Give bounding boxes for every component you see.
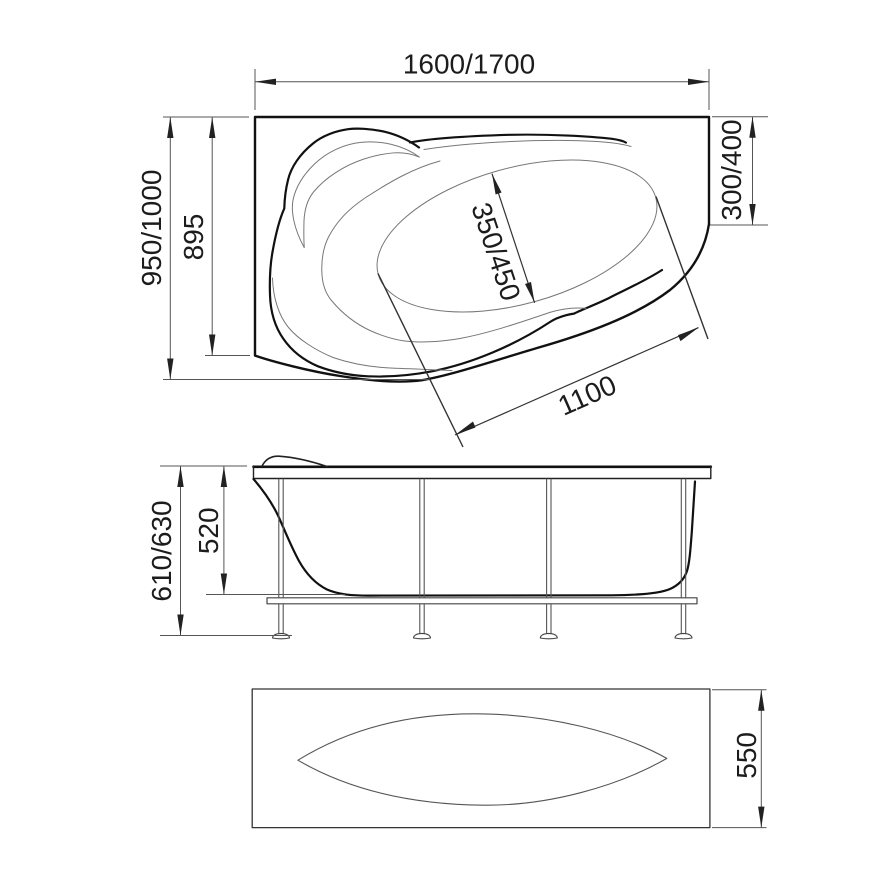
svg-text:895: 895 bbox=[178, 214, 209, 261]
svg-text:550: 550 bbox=[731, 732, 762, 779]
svg-text:300/400: 300/400 bbox=[716, 119, 747, 220]
svg-text:520: 520 bbox=[193, 507, 224, 554]
svg-text:610/630: 610/630 bbox=[146, 500, 177, 601]
svg-text:1600/1700: 1600/1700 bbox=[403, 49, 535, 80]
svg-text:950/1000: 950/1000 bbox=[136, 170, 167, 287]
